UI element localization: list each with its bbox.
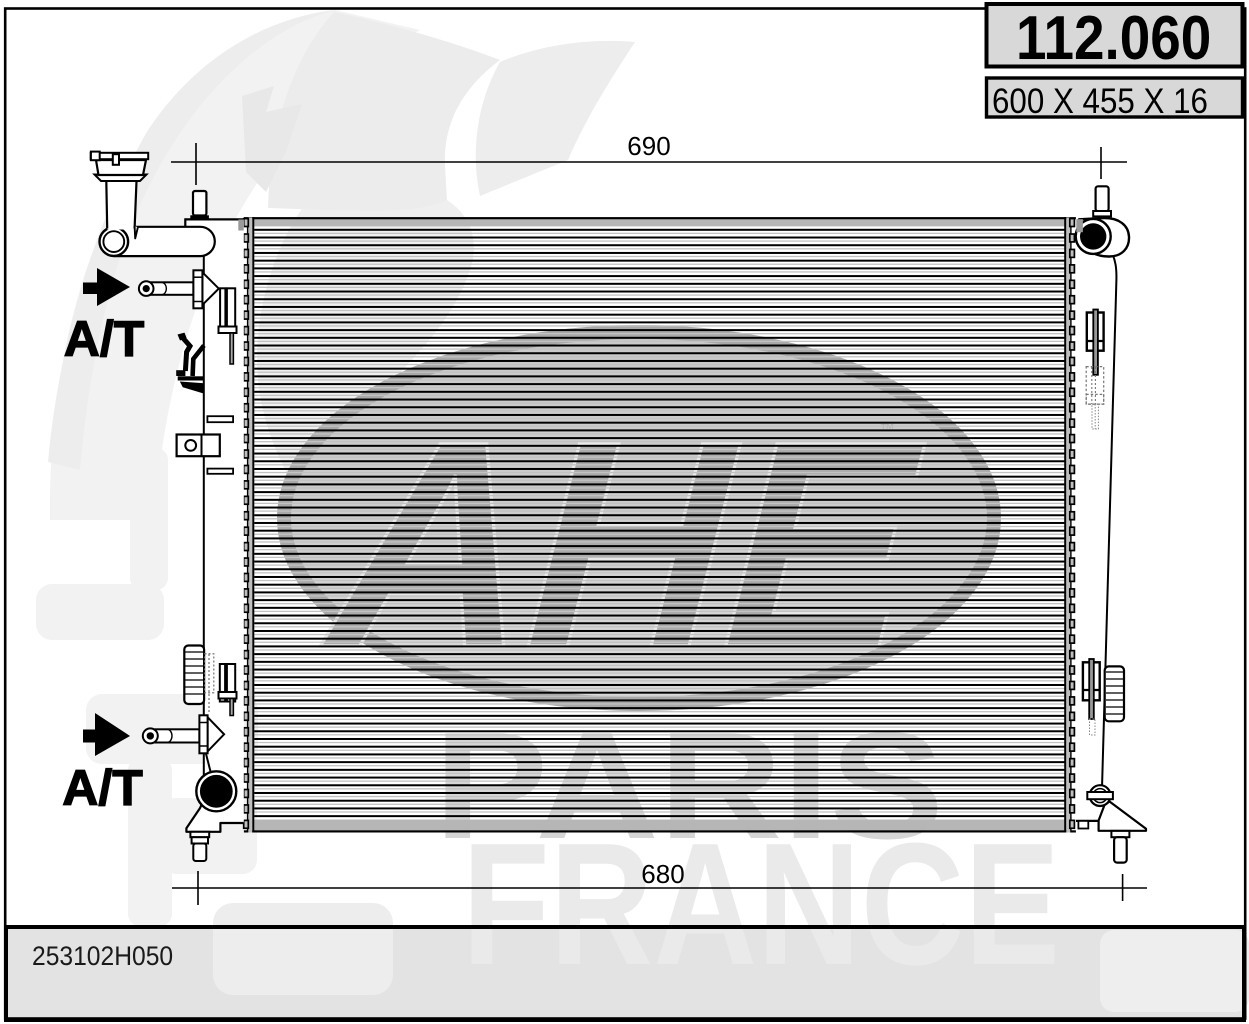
svg-text:680: 680 bbox=[641, 859, 684, 889]
svg-text:A/T: A/T bbox=[64, 311, 145, 367]
svg-text:FRANCE: FRANCE bbox=[462, 807, 1060, 1001]
svg-text:112.060: 112.060 bbox=[1016, 4, 1211, 73]
svg-text:690: 690 bbox=[627, 131, 670, 161]
svg-text:600 X 455 X 16: 600 X 455 X 16 bbox=[992, 82, 1208, 121]
svg-text:253102H050: 253102H050 bbox=[32, 942, 173, 971]
svg-text:A/T: A/T bbox=[62, 760, 143, 816]
